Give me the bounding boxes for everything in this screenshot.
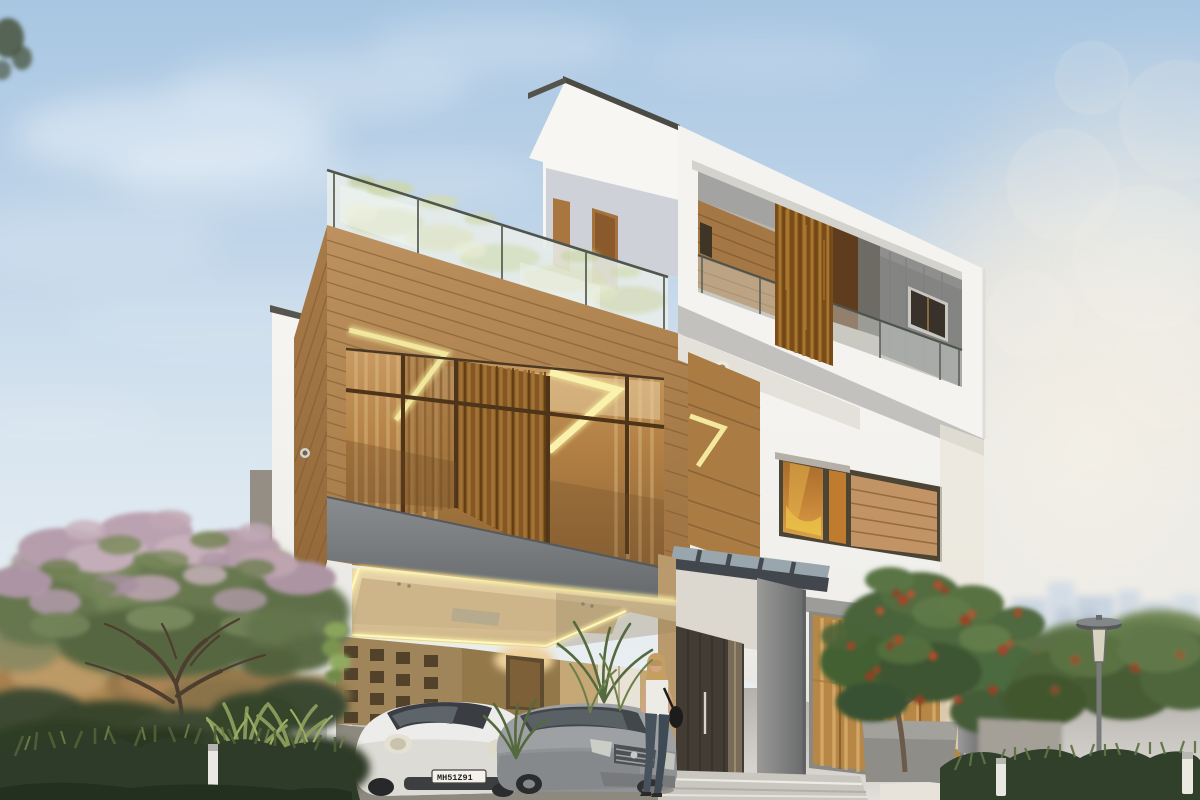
svg-text:MH51Z91: MH51Z91 [437,773,473,783]
